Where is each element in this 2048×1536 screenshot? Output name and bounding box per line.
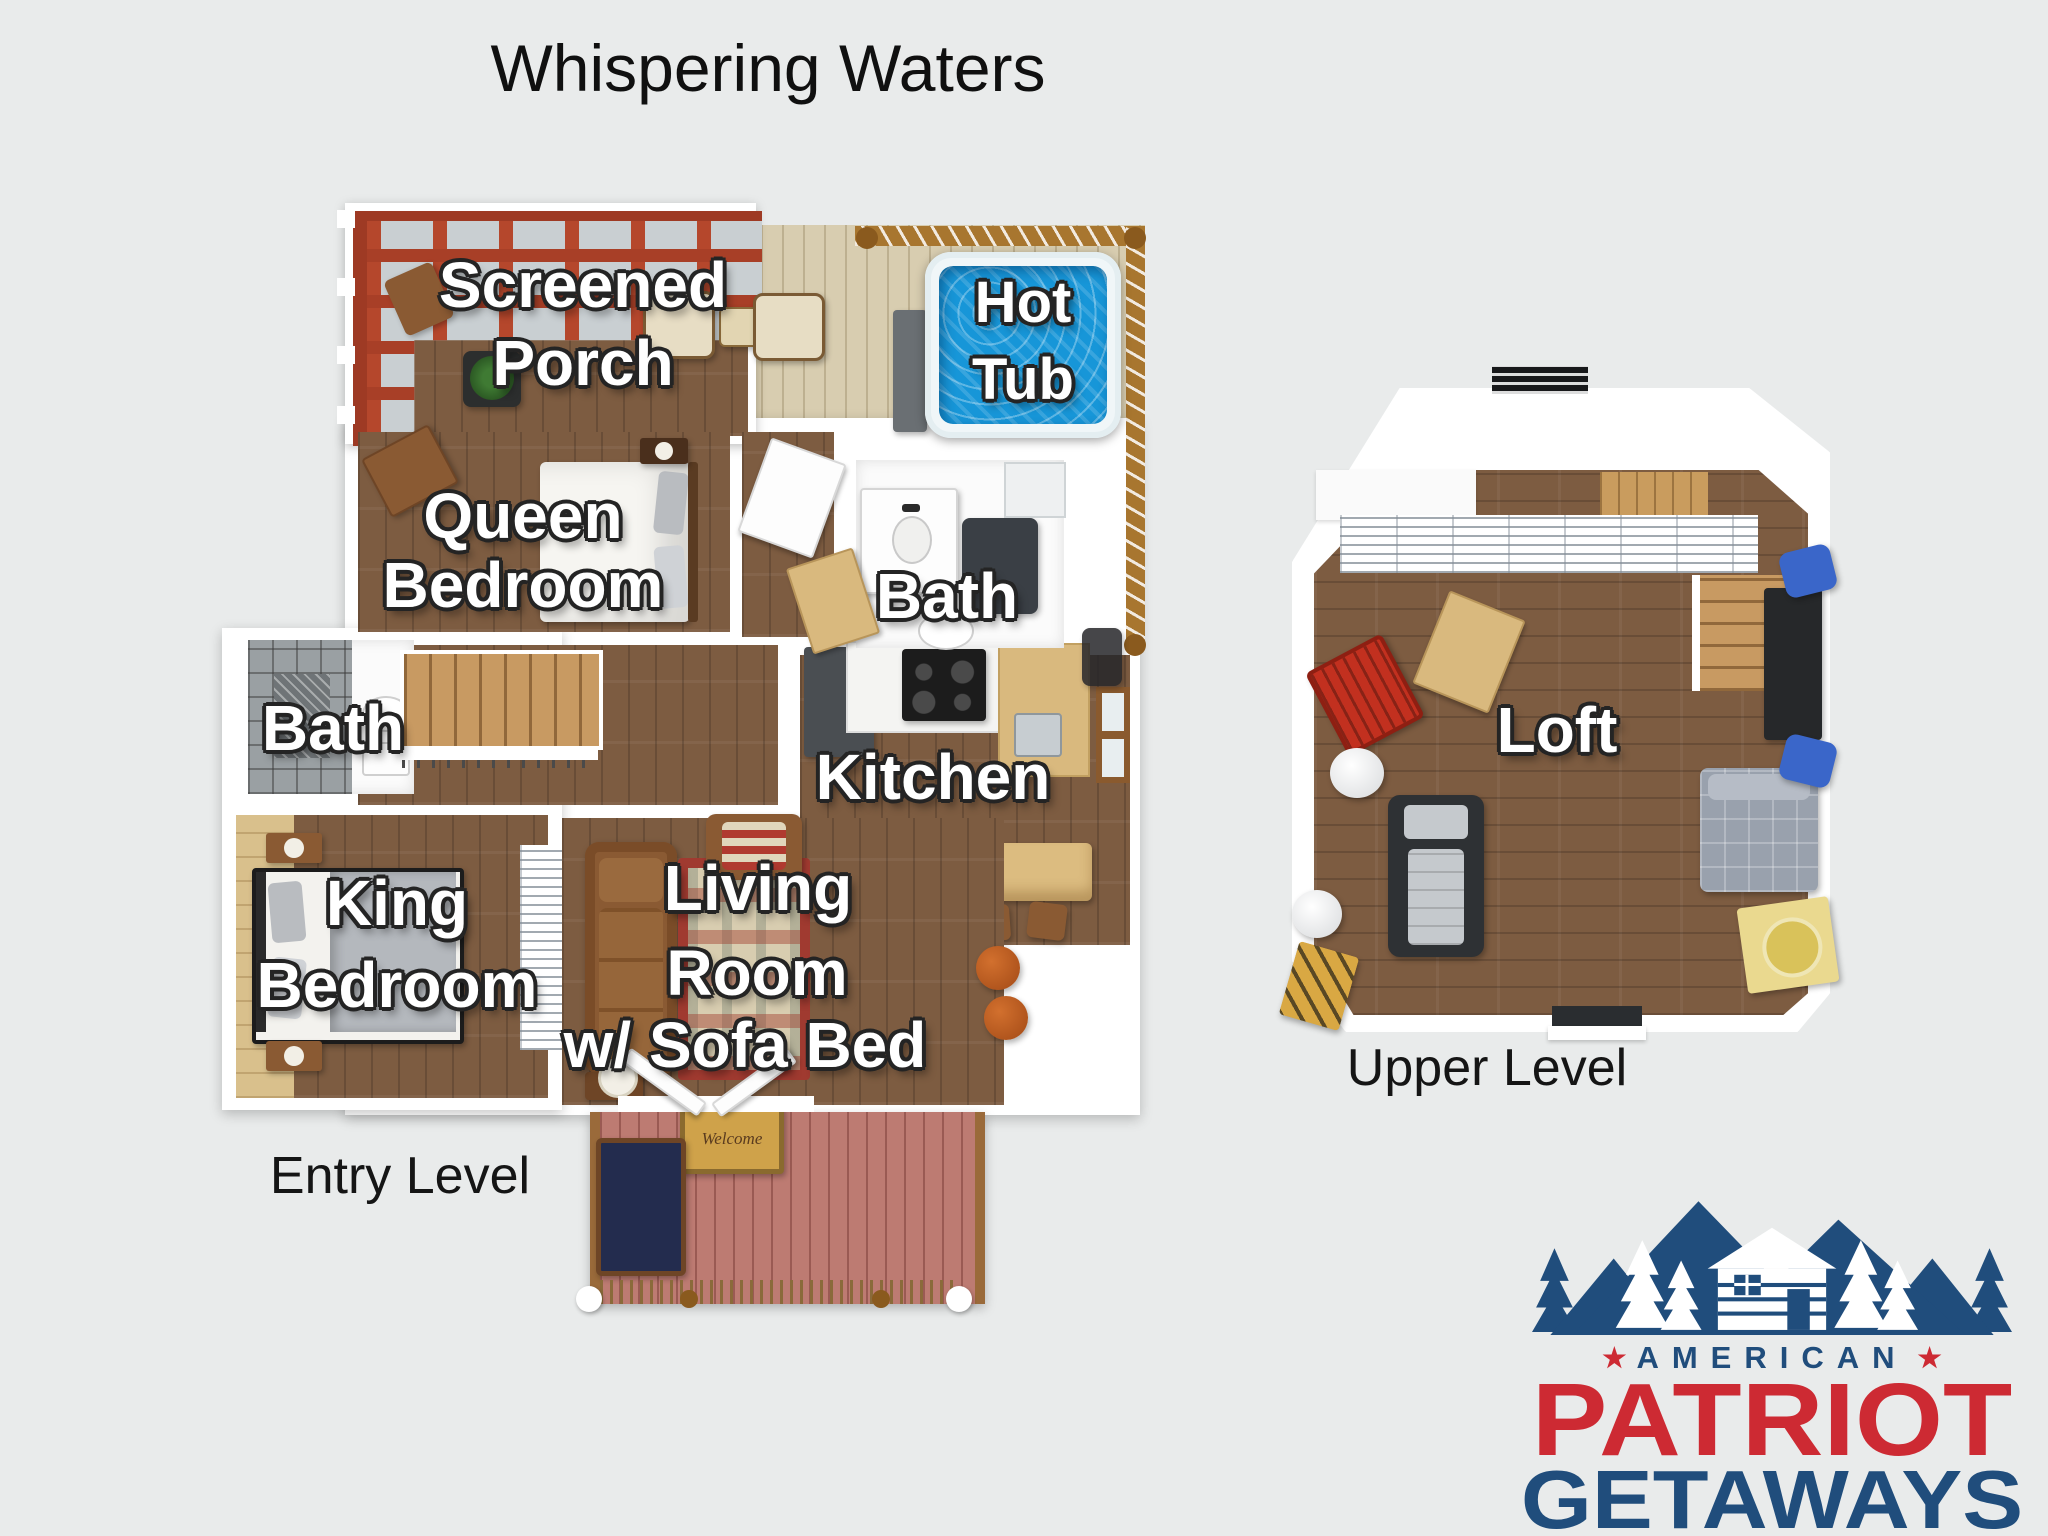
hot-tub-steps bbox=[893, 310, 927, 432]
recliner-headrest bbox=[1404, 805, 1468, 839]
deck-post-cap bbox=[946, 1286, 972, 1312]
stairwell-wood bbox=[1600, 472, 1708, 516]
staircase bbox=[400, 650, 603, 750]
porch-post bbox=[337, 278, 355, 296]
white-pouf bbox=[1330, 748, 1384, 798]
entry-level-caption: Entry Level bbox=[270, 1146, 530, 1206]
queen-bed-pillow bbox=[653, 471, 689, 536]
deck-post-cap bbox=[576, 1286, 602, 1312]
railing-post bbox=[1124, 634, 1146, 656]
logo-getaways-text: GETAWAYS bbox=[1521, 1458, 2023, 1536]
label-king-line2: Bedroom bbox=[257, 953, 538, 1017]
lamp bbox=[284, 1046, 304, 1066]
loft-desk bbox=[1764, 588, 1822, 740]
label-living-line2: Room bbox=[666, 941, 847, 1005]
upper-level-caption: Upper Level bbox=[1347, 1038, 1627, 1098]
front-deck: Welcome bbox=[590, 1112, 985, 1304]
loft-futon-mattress bbox=[1700, 768, 1818, 892]
label-living-line3: w/ Sofa Bed bbox=[564, 1013, 927, 1077]
recliner-chair bbox=[1388, 795, 1484, 957]
sofa-cushion bbox=[599, 858, 663, 902]
deck-railing-right bbox=[1126, 226, 1145, 646]
orange-pouf bbox=[976, 946, 1020, 990]
label-bath-left: Bath bbox=[262, 696, 404, 760]
loft-closet bbox=[1316, 470, 1476, 520]
window-pane bbox=[1102, 693, 1124, 731]
porch-post bbox=[337, 346, 355, 364]
brand-logo: ★ AMERICAN ★ PATRIOT GETAWAYS bbox=[1500, 1182, 2045, 1522]
window-pane bbox=[1102, 739, 1124, 777]
bar-stool bbox=[1026, 901, 1068, 941]
logo-mountains-icon bbox=[1532, 1186, 2012, 1336]
label-living-line1: Living bbox=[664, 856, 852, 920]
deck-post bbox=[872, 1290, 890, 1308]
label-king-line1: King bbox=[326, 871, 468, 935]
porch-post bbox=[337, 210, 355, 228]
label-hot-tub-line1: Hot bbox=[975, 274, 1072, 332]
porch-chair bbox=[753, 293, 825, 361]
deck-bench bbox=[596, 1138, 686, 1276]
bath-shower bbox=[1004, 462, 1066, 518]
deck-railing-top bbox=[855, 226, 1145, 246]
lamp bbox=[284, 838, 304, 858]
iron-decor bbox=[1082, 628, 1122, 686]
round-tray bbox=[1758, 914, 1826, 982]
queen-headboard bbox=[688, 462, 698, 622]
label-screened-porch-line1: Screened bbox=[439, 253, 727, 317]
loft-railing-shelf bbox=[1340, 515, 1758, 573]
welcome-mat-text: Welcome bbox=[702, 1129, 763, 1149]
label-bath-right: Bath bbox=[876, 564, 1018, 628]
railing-post bbox=[1124, 227, 1146, 249]
room-screened-porch bbox=[345, 203, 756, 444]
porch-post bbox=[337, 406, 355, 424]
queen-nightstand bbox=[640, 438, 688, 464]
king-pillow bbox=[267, 881, 306, 944]
recliner-cushion bbox=[1408, 849, 1464, 945]
label-kitchen: Kitchen bbox=[816, 745, 1051, 809]
stair-balusters bbox=[402, 760, 597, 768]
king-nightstand bbox=[266, 833, 322, 863]
lamp bbox=[655, 442, 673, 460]
loft-balcony-door bbox=[1552, 1006, 1642, 1026]
white-pouf bbox=[1292, 890, 1342, 938]
label-loft: Loft bbox=[1497, 698, 1618, 762]
king-nightstand bbox=[266, 1041, 322, 1071]
roof-vent bbox=[1492, 366, 1588, 394]
railing-post bbox=[856, 227, 878, 249]
kitchen-stove bbox=[902, 649, 986, 721]
floorplan-page: Whispering Waters bbox=[0, 0, 2048, 1536]
deck-post bbox=[680, 1290, 698, 1308]
stair-railing bbox=[398, 748, 598, 760]
bath-faucet bbox=[902, 504, 920, 512]
kitchen-window bbox=[1096, 687, 1130, 783]
deck-steps bbox=[600, 1280, 955, 1304]
label-queen-line2: Bedroom bbox=[383, 553, 664, 617]
page-title: Whispering Waters bbox=[490, 30, 1045, 106]
yellow-rug bbox=[1736, 896, 1839, 994]
label-hot-tub-line2: Tub bbox=[972, 351, 1074, 409]
label-screened-porch-line2: Porch bbox=[492, 331, 673, 395]
label-queen-line1: Queen bbox=[423, 484, 622, 548]
bath-sink bbox=[892, 516, 932, 564]
orange-pouf bbox=[984, 996, 1028, 1040]
